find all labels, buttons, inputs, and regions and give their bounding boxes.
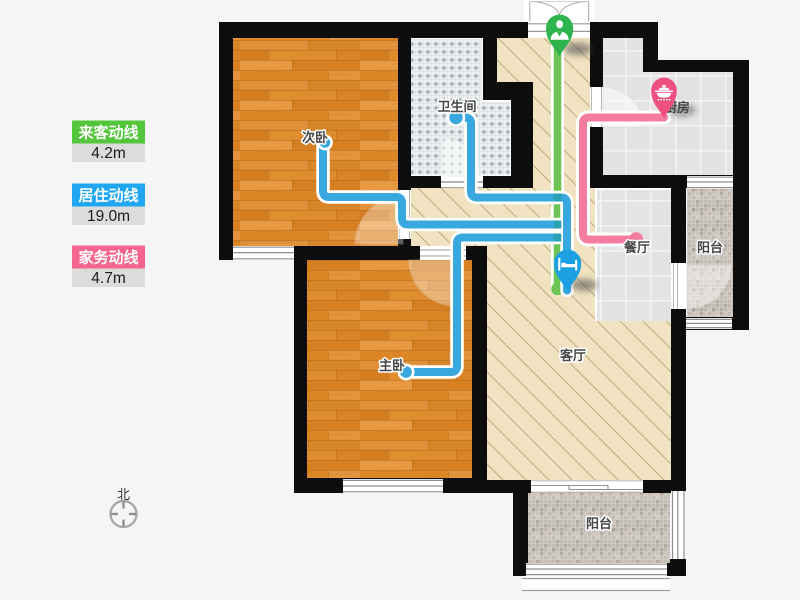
svg-text:北: 北: [117, 487, 130, 502]
svg-text:阳台: 阳台: [697, 240, 723, 255]
svg-text:4.2m: 4.2m: [91, 145, 125, 162]
svg-text:餐厅: 餐厅: [623, 240, 650, 255]
svg-text:4.7m: 4.7m: [91, 270, 125, 287]
svg-text:来客动线: 来客动线: [77, 124, 138, 142]
svg-text:居住动线: 居住动线: [78, 187, 138, 205]
svg-text:阳台: 阳台: [586, 516, 612, 531]
svg-text:客厅: 客厅: [560, 348, 586, 363]
svg-text:主卧: 主卧: [379, 358, 405, 373]
svg-text:家务动线: 家务动线: [78, 249, 138, 267]
svg-text:次卧: 次卧: [302, 130, 328, 145]
svg-text:19.0m: 19.0m: [87, 208, 130, 225]
svg-text:卫生间: 卫生间: [437, 99, 476, 114]
